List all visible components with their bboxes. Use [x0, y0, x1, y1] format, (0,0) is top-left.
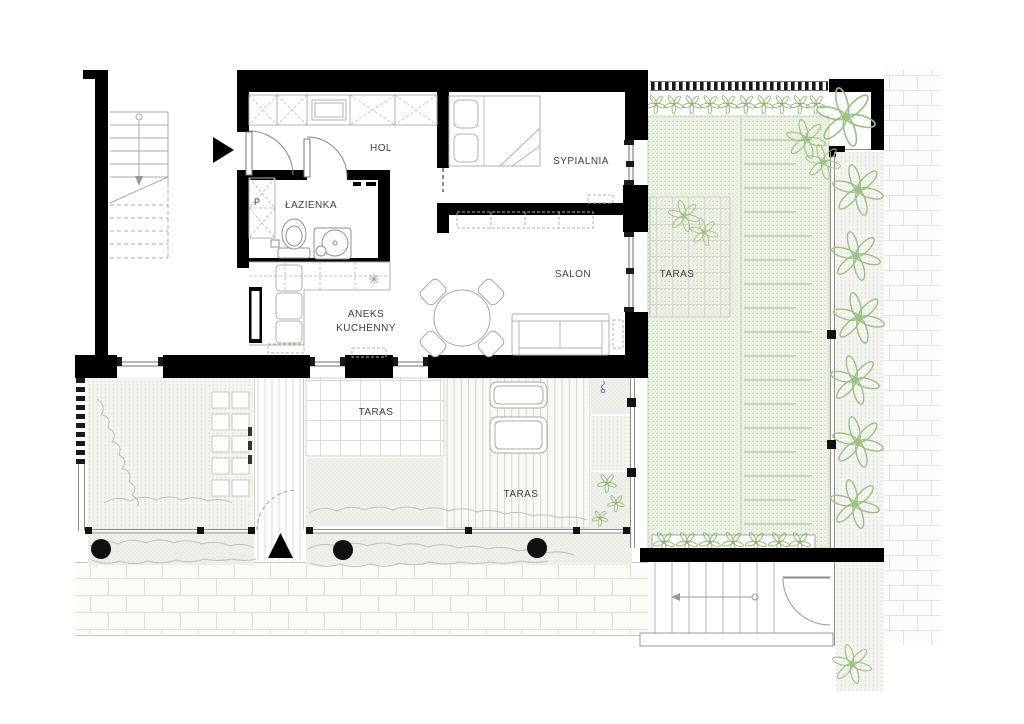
label-salon: SALON [555, 269, 591, 280]
green-terrace [640, 79, 885, 692]
stair-landing [640, 633, 833, 646]
wall-hall-left [237, 70, 249, 132]
hall-wardrobe [249, 95, 437, 125]
label-taras-patio: TARAS [359, 407, 394, 418]
label-aneks-line2: KUCHENNY [336, 323, 396, 334]
hob-symbol [369, 274, 379, 284]
wall [95, 70, 108, 378]
fence-post [827, 440, 836, 449]
wall-east-2 [623, 185, 648, 232]
sofa [512, 314, 609, 355]
wall-hall-bedroom [437, 92, 449, 168]
label-aneks-line1: ANEKS [348, 309, 384, 320]
wall-tick [366, 182, 376, 186]
fence-post [627, 398, 636, 407]
label-taras-green: TARAS [660, 269, 695, 280]
bed [449, 96, 540, 166]
fence-post [627, 468, 636, 477]
label-hol: HOL [370, 143, 392, 154]
patio-sand [306, 458, 444, 526]
planted-strip-lower [836, 562, 884, 692]
wall-stub [437, 203, 449, 233]
hedge-strip-left [88, 534, 254, 565]
fence-post [827, 330, 836, 339]
brick-paving-right [884, 70, 940, 645]
label-sypialnia: SYPIALNIA [553, 156, 609, 167]
wall-bedroom-salon [437, 203, 623, 215]
label-lazienka: ŁAZIENKA [285, 200, 337, 211]
strip-middle [590, 416, 630, 470]
brick-sidewalk-bottom [75, 564, 648, 634]
bath-door-leaf [304, 139, 310, 177]
wall-top [237, 70, 648, 92]
strip-gravel-bottom [590, 472, 630, 530]
label-taras-deck: TARAS [504, 489, 539, 500]
terrace-fence-comb [650, 82, 828, 90]
wall-south-1 [75, 355, 117, 378]
wall-tick [353, 182, 361, 186]
wall-south-2 [163, 355, 310, 378]
floor-plan-page: HOL SYPIALNIA ŁAZIENKA SALON ANEKS KUCHE… [0, 0, 1024, 724]
wall-bath-left [237, 170, 249, 268]
wall-east-1 [625, 70, 648, 140]
wall-south-4 [428, 355, 648, 378]
terrace-south-wall [640, 548, 884, 562]
wall-south-3 [345, 355, 393, 378]
sun-loungers [490, 382, 547, 453]
garden-gate-marks [248, 427, 252, 464]
floor-plan-svg: HOL SYPIALNIA ŁAZIENKA SALON ANEKS KUCHE… [0, 0, 1024, 724]
entry-door-leaf [246, 132, 252, 175]
washbasin [314, 228, 351, 259]
strip-gravel-top [590, 378, 630, 414]
dining-table [434, 290, 490, 346]
hedge-strip-right [306, 534, 632, 565]
label-washer: P [254, 197, 260, 207]
bath-accessory [271, 240, 279, 247]
bottom-outdoor-area [76, 378, 636, 567]
wall-tick [381, 182, 387, 186]
